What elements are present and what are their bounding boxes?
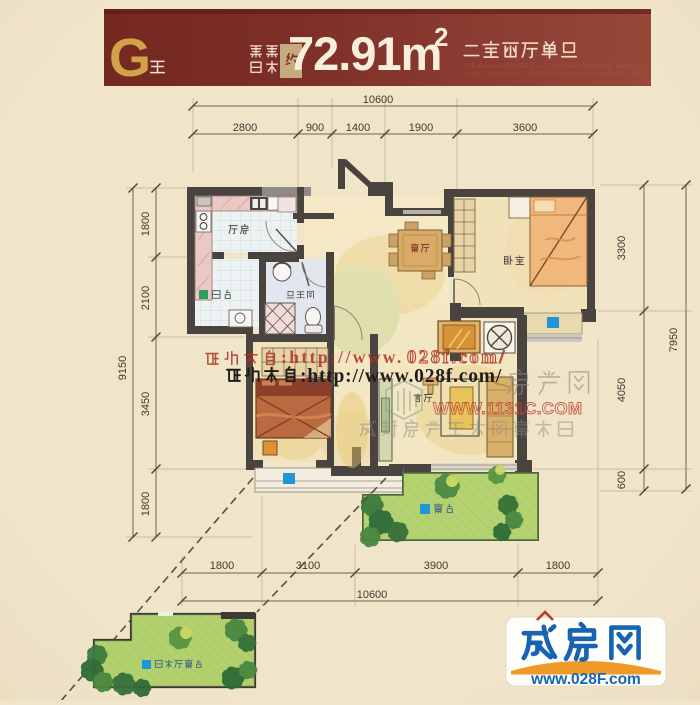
svg-text:WWW.1131C.COM: WWW.1131C.COM xyxy=(433,399,582,418)
svg-text:900: 900 xyxy=(306,122,324,134)
svg-text:2800: 2800 xyxy=(233,122,257,134)
svg-text:7950: 7950 xyxy=(668,328,680,352)
svg-text:SOME TOW ABOUT DERTH LIN TROWN: SOME TOW ABOUT DERTH LIN TROWN AND SEC L… xyxy=(462,71,643,78)
svg-text:www.028F.com: www.028F.com xyxy=(530,671,641,688)
svg-text:G: G xyxy=(109,28,151,88)
svg-text:10600: 10600 xyxy=(363,94,394,106)
svg-text:1800: 1800 xyxy=(210,560,234,572)
svg-text:THE ROANGSOVER FLAT TRENCH AND: THE ROANGSOVER FLAT TRENCH AND SHE KOOM xyxy=(462,63,637,70)
svg-text:2100: 2100 xyxy=(140,286,152,310)
svg-text:3450: 3450 xyxy=(140,392,152,416)
svg-text::http://www.: :http://www. xyxy=(281,347,404,367)
svg-text:2: 2 xyxy=(434,22,448,52)
svg-text:4050: 4050 xyxy=(616,378,628,402)
svg-text:1800: 1800 xyxy=(546,560,570,572)
svg-text:600: 600 xyxy=(616,471,628,489)
svg-text:3900: 3900 xyxy=(424,560,448,572)
svg-text:3600: 3600 xyxy=(513,122,537,134)
svg-text::http://www.028f.com/: :http://www.028f.com/ xyxy=(300,366,502,387)
svg-text:1900: 1900 xyxy=(409,122,433,134)
svg-text:72.91m: 72.91m xyxy=(288,27,441,80)
svg-text:3300: 3300 xyxy=(616,236,628,260)
svg-text:1800: 1800 xyxy=(140,212,152,236)
svg-text:3100: 3100 xyxy=(296,560,320,572)
svg-text:9150: 9150 xyxy=(117,356,129,380)
svg-text:10600: 10600 xyxy=(357,589,388,601)
svg-text:028f.com/: 028f.com/ xyxy=(407,348,507,368)
svg-text:1400: 1400 xyxy=(346,122,370,134)
svg-text:1800: 1800 xyxy=(140,492,152,516)
